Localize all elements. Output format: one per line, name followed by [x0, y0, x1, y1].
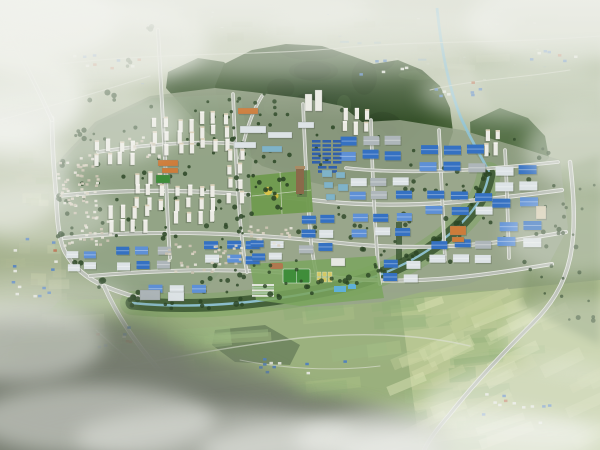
- tree: [233, 136, 236, 139]
- tree: [337, 213, 340, 216]
- roof-ridge: [452, 210, 469, 211]
- roof-ridge: [492, 203, 510, 204]
- tree: [268, 123, 272, 127]
- tower-roof: [238, 179, 242, 181]
- low-rise-house: [158, 156, 161, 158]
- tree: [161, 236, 166, 241]
- tree: [221, 238, 224, 241]
- tree: [287, 153, 292, 158]
- village-house: [307, 372, 311, 375]
- solar-panel-row: [312, 153, 321, 156]
- low-rise-house: [284, 229, 287, 231]
- village-house: [13, 270, 17, 273]
- tree: [488, 172, 492, 176]
- low-rise-house: [234, 263, 237, 265]
- low-rise-house: [95, 240, 98, 242]
- tree: [200, 280, 204, 284]
- campus-building: [168, 292, 184, 301]
- tower-roof: [145, 205, 149, 207]
- tower-roof: [158, 173, 162, 175]
- apartment-tower: [354, 122, 358, 135]
- campus-building: [452, 237, 464, 242]
- low-rise-house: [219, 255, 222, 257]
- low-rise-house: [174, 270, 177, 272]
- roof-ridge: [370, 181, 386, 182]
- tree: [295, 268, 299, 272]
- tower-roof: [199, 211, 203, 213]
- roof-ridge: [406, 264, 420, 265]
- solar-panel-row: [323, 161, 332, 164]
- roof-ridge: [453, 258, 469, 259]
- tree: [135, 296, 141, 302]
- low-rise-house: [95, 243, 98, 245]
- low-rise-house: [290, 227, 293, 229]
- tree: [234, 175, 239, 180]
- roof-ridge: [352, 233, 367, 234]
- solar-panel-row: [333, 157, 342, 160]
- roof-ridge: [373, 217, 388, 218]
- low-rise-house: [146, 156, 149, 158]
- low-rise-house: [179, 246, 182, 248]
- roof-ridge: [66, 254, 78, 255]
- village-house: [263, 363, 267, 366]
- village-house: [278, 362, 282, 365]
- tower-roof: [160, 184, 164, 186]
- low-rise-house: [78, 183, 81, 185]
- apartment-tower: [145, 205, 149, 216]
- low-rise-house: [218, 263, 221, 265]
- tree: [273, 160, 277, 164]
- tree: [411, 254, 415, 258]
- campus-building: [338, 184, 348, 191]
- low-rise-house: [214, 250, 217, 252]
- roof-ridge: [227, 244, 241, 245]
- tree: [489, 221, 493, 225]
- apartment-tower: [240, 191, 244, 204]
- tower-roof: [143, 220, 147, 222]
- roof-ridge: [475, 244, 491, 245]
- solar-panel-row: [329, 166, 338, 169]
- low-rise-house: [94, 191, 97, 193]
- roof-ridge: [375, 231, 390, 232]
- roof-ridge: [427, 194, 444, 195]
- campus-building: [324, 182, 333, 188]
- low-rise-house: [239, 258, 242, 260]
- low-rise-house: [76, 174, 79, 176]
- low-rise-house: [240, 247, 243, 249]
- roof-ridge: [385, 140, 401, 141]
- apartment-tower: [225, 126, 229, 138]
- low-rise-house: [101, 236, 104, 238]
- roof-ridge: [393, 181, 409, 182]
- tree: [115, 234, 118, 237]
- tree: [403, 187, 408, 192]
- tree: [207, 306, 211, 310]
- roof-ridge: [467, 149, 484, 150]
- low-rise-house: [99, 243, 102, 245]
- tower-roof: [133, 206, 137, 208]
- roof-ridge: [340, 156, 356, 157]
- tree: [277, 177, 282, 182]
- tree: [162, 232, 167, 237]
- tree: [268, 270, 271, 273]
- tower-roof: [121, 205, 125, 207]
- campus-building: [331, 258, 345, 266]
- aerial-rendering: [0, 0, 600, 450]
- tree: [342, 278, 348, 284]
- campus-building: [336, 172, 345, 178]
- tree: [285, 183, 289, 187]
- low-rise-house: [249, 226, 252, 228]
- roof-ridge: [320, 218, 334, 219]
- roof-ridge: [116, 250, 129, 251]
- roof-ridge: [363, 154, 379, 155]
- tree: [198, 299, 202, 303]
- solar-panel-row: [323, 140, 332, 143]
- roof-ridge: [404, 278, 418, 279]
- low-rise-house: [217, 249, 220, 251]
- tree: [121, 175, 125, 179]
- low-rise-house: [168, 253, 171, 255]
- tree: [233, 301, 239, 307]
- campus-building: [322, 170, 332, 177]
- roof-ridge: [443, 166, 460, 167]
- tree: [213, 263, 218, 268]
- apartment-tower: [484, 143, 488, 156]
- landmark-tower: [296, 168, 304, 194]
- tree: [275, 205, 280, 210]
- tree: [263, 284, 267, 288]
- apartment-tower: [210, 210, 214, 222]
- tower-roof: [187, 212, 191, 214]
- tree: [355, 281, 359, 285]
- apartment-tower: [159, 199, 163, 210]
- roof-ridge: [299, 249, 313, 250]
- low-rise-house: [248, 230, 251, 232]
- tower-roof: [200, 126, 204, 128]
- tennis-court: [328, 272, 332, 277]
- campus-building: [162, 168, 178, 173]
- tree: [249, 211, 254, 216]
- solar-panel-row: [312, 157, 321, 160]
- tree: [115, 198, 118, 201]
- low-rise-house: [259, 238, 262, 240]
- tower-roof: [188, 185, 192, 187]
- village-house: [54, 260, 58, 263]
- tree: [443, 216, 448, 221]
- tree: [374, 265, 378, 269]
- campus-building: [158, 160, 178, 166]
- roof-ridge: [302, 233, 316, 234]
- tree: [208, 276, 213, 281]
- tree: [319, 278, 324, 283]
- tree: [296, 229, 301, 234]
- tower-roof: [364, 122, 368, 124]
- low-rise-house: [250, 235, 253, 237]
- tower-roof: [201, 138, 205, 140]
- landmark-cap: [295, 166, 305, 169]
- low-rise-house: [87, 179, 90, 181]
- low-rise-house: [277, 244, 280, 246]
- tree: [225, 278, 230, 283]
- tower-roof: [211, 198, 215, 200]
- village-house: [272, 366, 276, 369]
- low-rise-house: [239, 252, 242, 254]
- tower-roof: [240, 149, 244, 151]
- campus-building: [140, 290, 160, 300]
- tree: [341, 214, 346, 219]
- tree: [142, 170, 147, 175]
- tower-roof: [190, 143, 194, 145]
- low-rise-house: [257, 238, 260, 240]
- low-rise-house: [262, 232, 265, 234]
- campus-building: [326, 194, 335, 200]
- tree: [234, 269, 237, 272]
- low-rise-house: [211, 271, 214, 273]
- village-house: [51, 268, 55, 271]
- roof-ridge: [468, 167, 485, 168]
- tree: [284, 282, 287, 285]
- tree: [183, 172, 187, 176]
- tree: [247, 174, 251, 178]
- top-haze: [0, 0, 600, 120]
- low-rise-house: [191, 271, 194, 273]
- low-rise-house: [191, 253, 194, 255]
- low-rise-house: [288, 234, 291, 236]
- tree: [338, 279, 342, 283]
- roof-ridge: [148, 288, 162, 289]
- tower-roof: [136, 184, 140, 186]
- tower-roof: [227, 193, 231, 195]
- roof-ridge: [271, 244, 284, 245]
- tree: [164, 226, 167, 229]
- tree: [257, 180, 262, 185]
- roof-ridge: [496, 171, 514, 172]
- apartment-tower: [121, 205, 125, 218]
- roof-ridge: [117, 266, 130, 267]
- apartment-tower: [494, 142, 498, 155]
- tree: [445, 183, 448, 186]
- low-rise-house: [265, 227, 268, 229]
- solar-panel-row: [323, 144, 332, 147]
- village-house: [343, 360, 347, 363]
- tower-roof: [175, 186, 179, 188]
- tree: [255, 186, 258, 189]
- apartment-tower: [238, 163, 242, 174]
- tree: [462, 185, 465, 188]
- roof-ridge: [135, 250, 148, 251]
- tree: [474, 186, 478, 190]
- roof-ridge: [351, 182, 367, 183]
- roof-ridge: [319, 233, 333, 234]
- tower-roof: [227, 165, 231, 167]
- tennis-court: [323, 272, 327, 277]
- roof-ridge: [429, 258, 445, 259]
- solar-panel-row: [312, 144, 321, 147]
- low-rise-house: [180, 262, 183, 264]
- tree: [352, 223, 356, 227]
- tree: [380, 254, 383, 257]
- tree: [561, 277, 564, 280]
- tree: [295, 259, 298, 262]
- roof-ridge: [318, 246, 332, 247]
- tree: [186, 138, 189, 141]
- tree: [470, 203, 473, 206]
- solar-panel-row: [333, 140, 342, 143]
- low-rise-house: [109, 233, 112, 235]
- apartment-tower: [213, 139, 217, 151]
- solar-panel-row: [323, 148, 332, 151]
- roof-ridge: [420, 166, 437, 167]
- apartment-tower: [160, 184, 164, 196]
- low-rise-house: [189, 245, 192, 247]
- solar-panel-row: [333, 144, 342, 147]
- tree: [281, 177, 286, 182]
- tree: [237, 229, 241, 233]
- tower-roof: [210, 184, 214, 186]
- tree: [232, 205, 237, 210]
- tree: [262, 155, 266, 159]
- roof-ridge: [269, 256, 282, 257]
- apartment-tower: [188, 185, 192, 196]
- village-house: [13, 265, 17, 268]
- tower-roof: [135, 197, 139, 199]
- campus-building: [234, 142, 256, 148]
- low-rise-house: [186, 266, 189, 268]
- low-rise-house: [215, 245, 218, 247]
- tower-roof: [211, 125, 215, 127]
- tennis-court: [317, 272, 321, 277]
- tower-roof: [175, 199, 179, 201]
- low-rise-house: [227, 255, 230, 257]
- roof-ridge: [137, 264, 150, 265]
- tree: [250, 250, 253, 253]
- roof-ridge: [421, 149, 438, 150]
- tower-roof: [135, 173, 139, 175]
- tree: [310, 291, 314, 295]
- roof-ridge: [384, 263, 398, 264]
- solar-panel-row: [333, 161, 342, 164]
- solar-panel-row: [333, 153, 342, 156]
- low-rise-house: [81, 175, 84, 177]
- tree: [267, 291, 273, 297]
- tree: [236, 284, 239, 287]
- tower-roof: [240, 191, 244, 193]
- tower-roof: [159, 199, 163, 201]
- tree: [268, 187, 272, 191]
- tree: [383, 250, 386, 253]
- roof-ridge: [68, 267, 80, 268]
- tree: [219, 279, 222, 282]
- solar-panel-row: [323, 153, 332, 156]
- solar-panel-row: [323, 157, 332, 160]
- tree: [238, 297, 242, 301]
- tree: [217, 199, 221, 203]
- tower-roof: [190, 132, 194, 134]
- field-patch: [0, 258, 20, 269]
- tree: [393, 240, 396, 243]
- apartment-tower: [121, 219, 125, 231]
- apartment-tower: [174, 211, 178, 223]
- tree: [271, 196, 276, 201]
- tree: [232, 126, 235, 129]
- solar-panel-row: [312, 161, 321, 164]
- solar-panel-row: [318, 166, 327, 169]
- campus-building: [450, 226, 466, 235]
- tree: [269, 264, 273, 268]
- tree: [403, 223, 408, 228]
- apartment-tower: [135, 173, 139, 184]
- roof-ridge: [431, 245, 447, 246]
- tower-roof: [228, 177, 232, 179]
- low-rise-house: [165, 252, 168, 254]
- tower-roof: [146, 184, 150, 186]
- tree: [306, 284, 311, 289]
- scene-canvas: [0, 0, 600, 450]
- tree: [251, 174, 255, 178]
- tree: [254, 160, 258, 164]
- tower-roof: [484, 143, 488, 145]
- apartment-tower: [199, 211, 203, 224]
- tower-roof: [147, 197, 151, 199]
- tree: [204, 223, 209, 228]
- tree: [360, 247, 365, 252]
- apartment-tower: [143, 220, 147, 233]
- low-rise-house: [86, 183, 89, 185]
- tower-roof: [121, 219, 125, 221]
- tree: [273, 192, 277, 196]
- solar-panel-row: [312, 148, 321, 151]
- tree: [366, 273, 371, 278]
- tree: [316, 134, 319, 137]
- roof-ridge: [495, 186, 513, 187]
- tree: [141, 177, 144, 180]
- tree: [239, 226, 242, 229]
- tower-roof: [354, 122, 358, 124]
- roof-ridge: [397, 216, 412, 217]
- tree: [220, 207, 222, 209]
- tree: [379, 268, 382, 271]
- field-patch: [19, 260, 34, 269]
- apartment-tower: [146, 184, 150, 195]
- tree: [331, 125, 335, 129]
- tower-roof: [131, 220, 135, 222]
- low-rise-house: [168, 260, 171, 262]
- roof-ridge: [252, 256, 265, 257]
- tower-roof: [210, 210, 214, 212]
- tree: [543, 292, 546, 295]
- tree: [169, 306, 173, 310]
- roof-ridge: [205, 258, 219, 259]
- tree: [337, 206, 340, 209]
- apartment-tower: [228, 149, 232, 161]
- pool-small: [348, 284, 356, 289]
- tree: [412, 149, 415, 152]
- tree: [300, 280, 303, 283]
- roof-ridge: [192, 288, 206, 289]
- apartment-tower: [190, 132, 194, 144]
- tree: [409, 163, 412, 166]
- low-rise-house: [203, 269, 206, 271]
- roof-ridge: [385, 155, 401, 156]
- low-rise-house: [180, 264, 183, 266]
- low-rise-house: [95, 185, 98, 187]
- tree: [313, 225, 317, 229]
- tower-roof: [179, 143, 183, 145]
- roof-ridge: [84, 254, 96, 255]
- tower-roof: [225, 126, 229, 128]
- apartment-tower: [200, 126, 204, 138]
